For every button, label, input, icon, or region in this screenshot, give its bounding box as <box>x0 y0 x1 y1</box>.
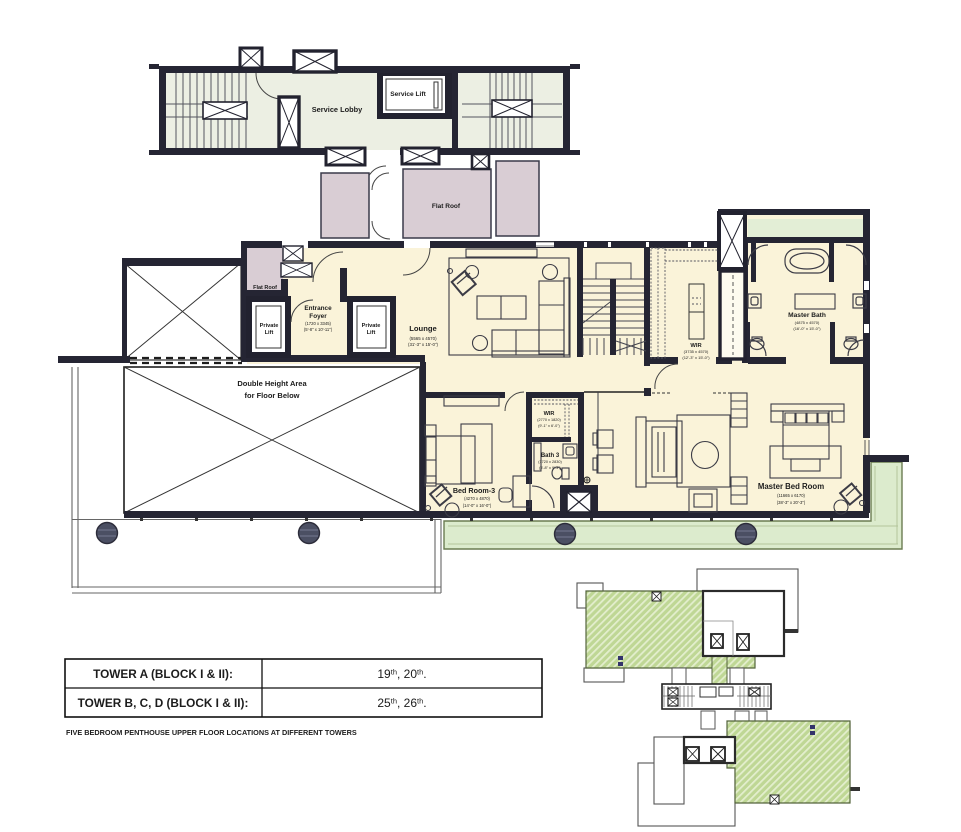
svg-text:(4270 x 4870): (4270 x 4870) <box>464 496 490 501</box>
svg-text:Bath 3: Bath 3 <box>541 453 560 459</box>
svg-text:Master Bath: Master Bath <box>788 312 826 319</box>
svg-text:Service Lift: Service Lift <box>390 91 426 98</box>
svg-text:(5565 x 4570): (5565 x 4570) <box>409 336 437 341</box>
svg-text:(3735 x 4570): (3735 x 4570) <box>684 349 709 354</box>
svg-text:Lift: Lift <box>265 330 274 336</box>
svg-text:Bed Room-3: Bed Room-3 <box>453 486 495 495</box>
svg-text:WIR: WIR <box>544 411 555 417</box>
svg-text:Private: Private <box>362 323 381 329</box>
svg-text:(12'-3" x 15'-0"): (12'-3" x 15'-0") <box>682 355 710 360</box>
svg-text:TOWER B, C, D (BLOCK I & II):: TOWER B, C, D (BLOCK I & II): <box>78 696 249 710</box>
svg-text:Master Bed Room: Master Bed Room <box>758 482 824 491</box>
svg-text:Private: Private <box>260 323 279 329</box>
svg-text:Lift: Lift <box>367 330 376 336</box>
svg-text:FIVE BEDROOM PENTHOUSE UPPER F: FIVE BEDROOM PENTHOUSE UPPER FLOOR LOCAT… <box>66 728 357 737</box>
svg-text:(31'-3" x 15'-0"): (31'-3" x 15'-0") <box>408 342 438 347</box>
svg-text:Entrance: Entrance <box>304 305 332 312</box>
svg-text:(38'-3" x 20'-3"): (38'-3" x 20'-3") <box>777 500 806 505</box>
svg-text:(5'-8" x 10'-11"): (5'-8" x 10'-11") <box>304 327 333 332</box>
svg-text:(2770 x 1820): (2770 x 1820) <box>537 418 561 422</box>
svg-text:Flat Roof: Flat Roof <box>432 203 461 210</box>
svg-text:Double Height Area: Double Height Area <box>237 379 307 388</box>
svg-text:for Floor Below: for Floor Below <box>245 391 300 400</box>
svg-text:(5'-8" x 9'-3"): (5'-8" x 9'-3") <box>539 466 561 470</box>
svg-text:TOWER A (BLOCK I & II):: TOWER A (BLOCK I & II): <box>93 667 233 681</box>
svg-text:(11665 x 6170): (11665 x 6170) <box>777 493 805 498</box>
svg-text:(9'-1" x 6'-0"): (9'-1" x 6'-0") <box>538 424 560 428</box>
svg-text:(14'-0" x 16'-0"): (14'-0" x 16'-0") <box>463 503 492 508</box>
svg-text:(1720 x 2830): (1720 x 2830) <box>538 460 562 464</box>
svg-text:Foyer: Foyer <box>309 313 327 320</box>
svg-text:Service Lobby: Service Lobby <box>312 105 363 114</box>
svg-text:(4875 x 4570): (4875 x 4570) <box>795 320 820 325</box>
svg-text:(16'-0" x 15'-0"): (16'-0" x 15'-0") <box>793 326 821 331</box>
svg-text:(1720 x 3345): (1720 x 3345) <box>305 321 331 326</box>
svg-text:Lounge: Lounge <box>409 324 436 333</box>
